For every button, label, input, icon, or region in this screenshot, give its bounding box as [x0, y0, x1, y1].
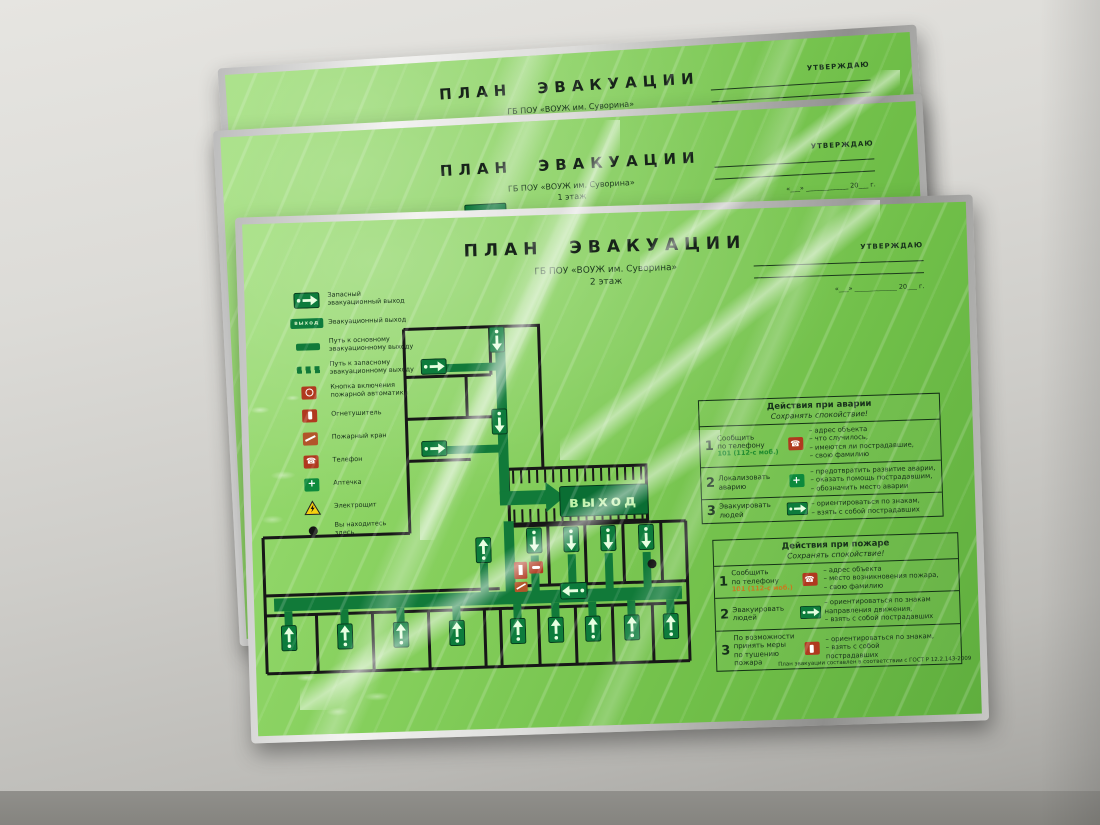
approve-block: УТВЕРЖДАЮ «___» _____________ 20___ г.	[714, 139, 876, 196]
medical-cross-icon: +	[789, 474, 804, 487]
approve-date-line: «___» _____________ 20___ г.	[754, 282, 924, 295]
actions-on-fire-table: Действия при пожаре Сохранять спокойстви…	[712, 532, 962, 672]
plate-front: ПЛАН ЭВАКУАЦИИ ГБ ПОУ «ВОУЖ им. Суворина…	[235, 195, 989, 744]
phone-icon: ☎	[802, 573, 817, 586]
exit-running-icon	[785, 502, 809, 516]
extinguisher-icon	[804, 642, 819, 655]
wall-shadow	[1040, 0, 1100, 825]
plate-front-face: ПЛАН ЭВАКУАЦИИ ГБ ПОУ «ВОУЖ им. Суворина…	[242, 202, 982, 736]
exit-sign-big: выход	[560, 484, 649, 517]
photo-of-evacuation-plan-signs: { "colors": { "plate_green": "#85cf5c", …	[0, 0, 1100, 825]
floor-surface	[0, 791, 1100, 825]
phone-icon: ☎	[788, 437, 803, 450]
actions-on-accident-table: Действия при аварии Сохранять спокойстви…	[698, 393, 944, 525]
approve-date-line: «___» _____________ 20___ г.	[716, 180, 876, 196]
legend-item: Запасный эвакуационный выход	[292, 289, 430, 309]
approve-block: УТВЕРЖДАЮ «___» _____________ 20___ г.	[753, 241, 924, 295]
legend-label: Запасный эвакуационный выход	[327, 290, 404, 308]
emergency-exit-sign-icon	[292, 292, 319, 309]
exit-running-icon	[798, 605, 822, 619]
floor-plan: выход	[251, 306, 707, 692]
svg-text:выход: выход	[569, 491, 640, 511]
